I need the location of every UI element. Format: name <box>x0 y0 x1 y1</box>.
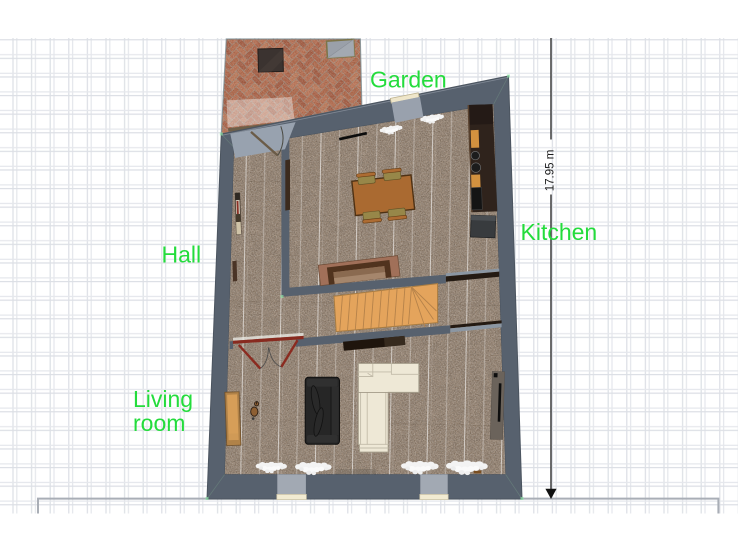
svg-text:room: room <box>133 410 185 436</box>
svg-text:Hall: Hall <box>162 242 202 268</box>
svg-text:17.95 m: 17.95 m <box>544 150 556 192</box>
svg-text:Living: Living <box>133 386 193 412</box>
svg-text:Garden: Garden <box>370 67 447 93</box>
svg-text:Kitchen: Kitchen <box>521 219 598 245</box>
